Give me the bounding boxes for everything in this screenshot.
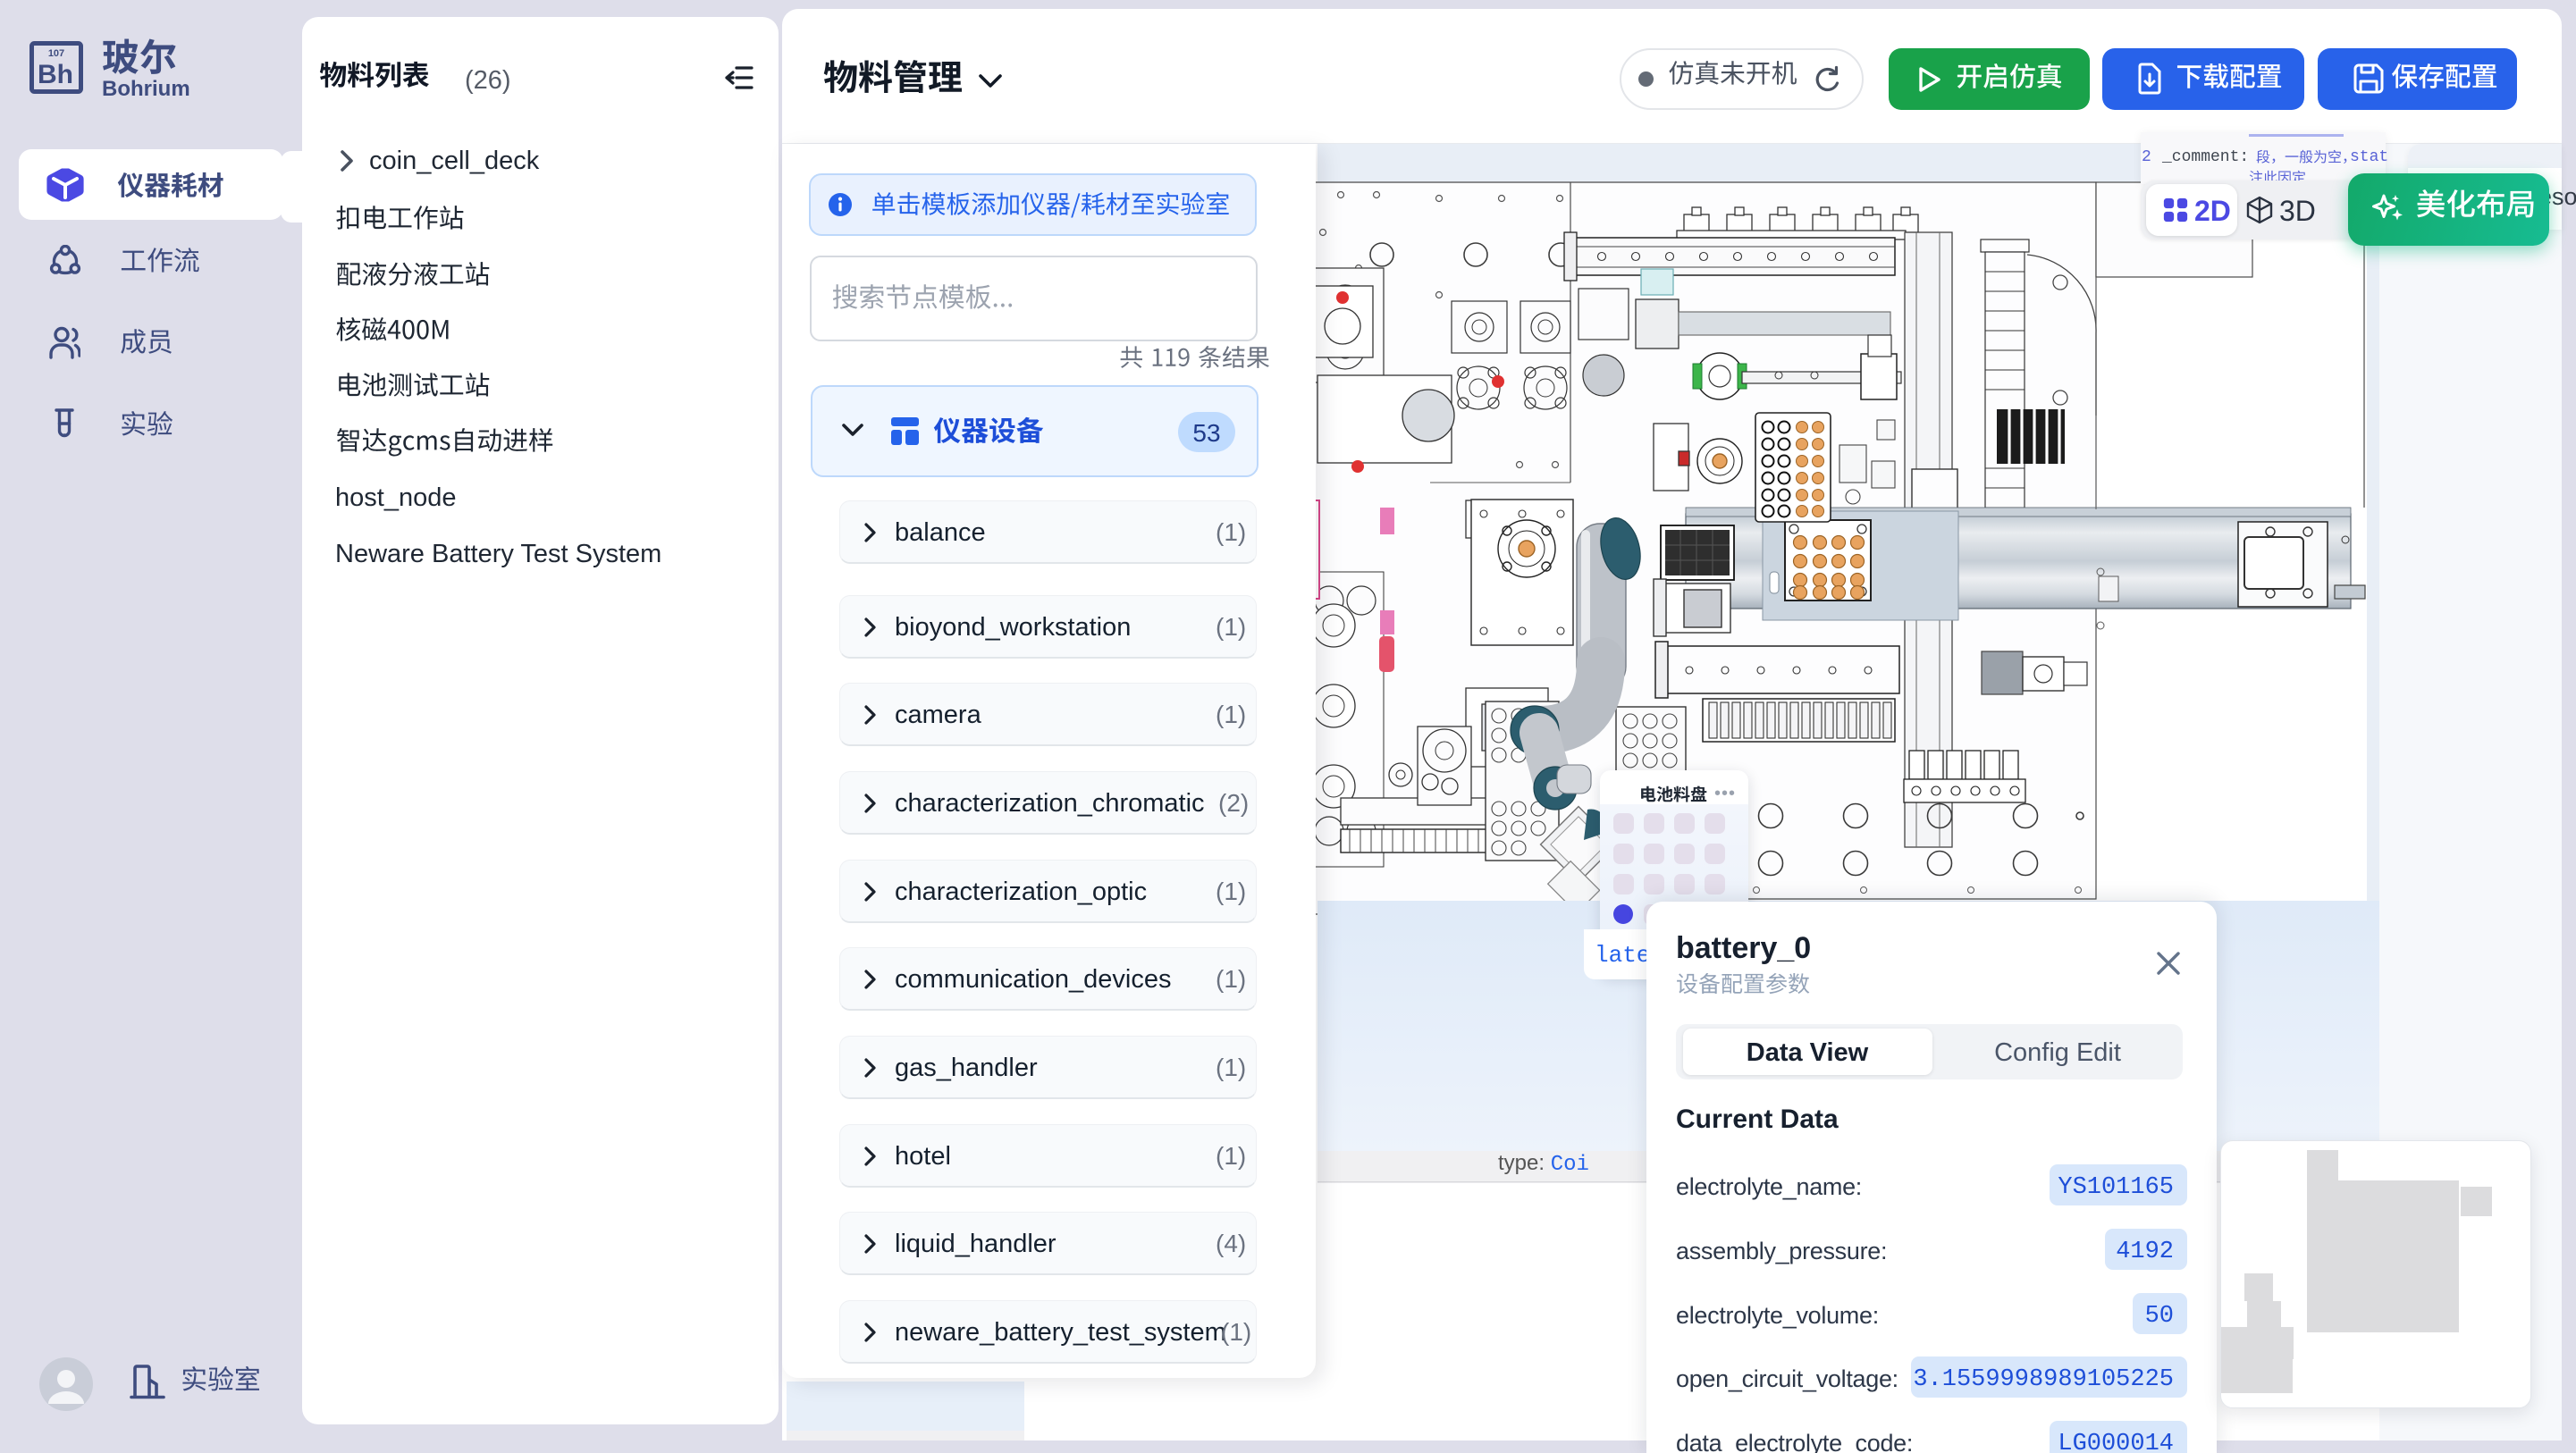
svg-text:Bh: Bh (38, 60, 73, 89)
svg-text:107: 107 (48, 48, 64, 59)
